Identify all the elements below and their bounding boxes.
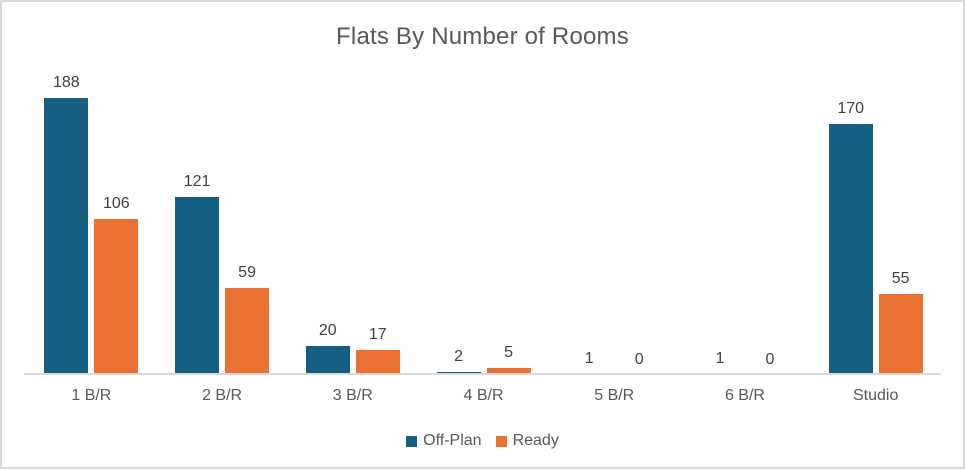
data-label-ready-5-b-r: 0	[635, 352, 644, 368]
x-axis-label-4-b-r: 4 B/R	[418, 387, 549, 405]
bar-off-plan-3-b-r: 20	[306, 346, 350, 376]
bar-off-plan-1-b-r: 188	[44, 98, 88, 375]
category-group-studio: 17055	[810, 80, 941, 375]
legend-swatch-ready	[496, 436, 507, 447]
bar-ready-3-b-r: 17	[356, 350, 400, 375]
plot-area: 18810612159201725101017055	[26, 80, 941, 375]
data-label-ready-6-b-r: 0	[766, 352, 775, 368]
legend-label-ready: Ready	[513, 433, 559, 449]
x-axis-label-5-b-r: 5 B/R	[549, 387, 680, 405]
data-label-ready-studio: 55	[892, 271, 910, 287]
chart-container: Flats By Number of Rooms 188106121592017…	[0, 0, 965, 469]
category-group-3-b-r: 2017	[287, 80, 418, 375]
legend-label-off-plan: Off-Plan	[423, 433, 481, 449]
x-axis-labels: 1 B/R2 B/R3 B/R4 B/R5 B/R6 B/RStudio	[26, 387, 941, 405]
data-label-off-plan-5-b-r: 1	[585, 351, 594, 367]
data-label-off-plan-studio: 170	[837, 101, 864, 117]
bar-ready-2-b-r: 59	[225, 288, 269, 375]
category-group-4-b-r: 25	[418, 80, 549, 375]
x-axis-label-6-b-r: 6 B/R	[680, 387, 811, 405]
data-label-ready-2-b-r: 59	[238, 265, 256, 281]
category-group-6-b-r: 10	[680, 80, 811, 375]
category-group-2-b-r: 12159	[157, 80, 288, 375]
data-label-ready-3-b-r: 17	[369, 327, 387, 343]
category-group-1-b-r: 188106	[26, 80, 157, 375]
bar-off-plan-2-b-r: 121	[175, 197, 219, 376]
data-label-off-plan-6-b-r: 1	[716, 351, 725, 367]
category-group-5-b-r: 10	[549, 80, 680, 375]
bar-ready-studio: 55	[879, 294, 923, 375]
data-label-ready-1-b-r: 106	[103, 196, 130, 212]
data-label-off-plan-1-b-r: 188	[53, 75, 80, 91]
legend-item-ready: Ready	[496, 433, 559, 449]
legend: Off-PlanReady	[2, 433, 963, 449]
x-axis-label-2-b-r: 2 B/R	[157, 387, 288, 405]
x-axis-label-3-b-r: 3 B/R	[287, 387, 418, 405]
bar-off-plan-studio: 170	[829, 124, 873, 375]
data-label-ready-4-b-r: 5	[504, 345, 513, 361]
data-label-off-plan-4-b-r: 2	[454, 349, 463, 365]
x-axis-label-studio: Studio	[810, 387, 941, 405]
x-axis-label-1-b-r: 1 B/R	[26, 387, 157, 405]
legend-item-off-plan: Off-Plan	[406, 433, 481, 449]
x-axis-line	[24, 373, 941, 375]
bar-ready-1-b-r: 106	[94, 219, 138, 375]
chart-title: Flats By Number of Rooms	[2, 23, 963, 51]
data-label-off-plan-2-b-r: 121	[184, 174, 211, 190]
legend-swatch-off-plan	[406, 436, 417, 447]
data-label-off-plan-3-b-r: 20	[319, 323, 337, 339]
